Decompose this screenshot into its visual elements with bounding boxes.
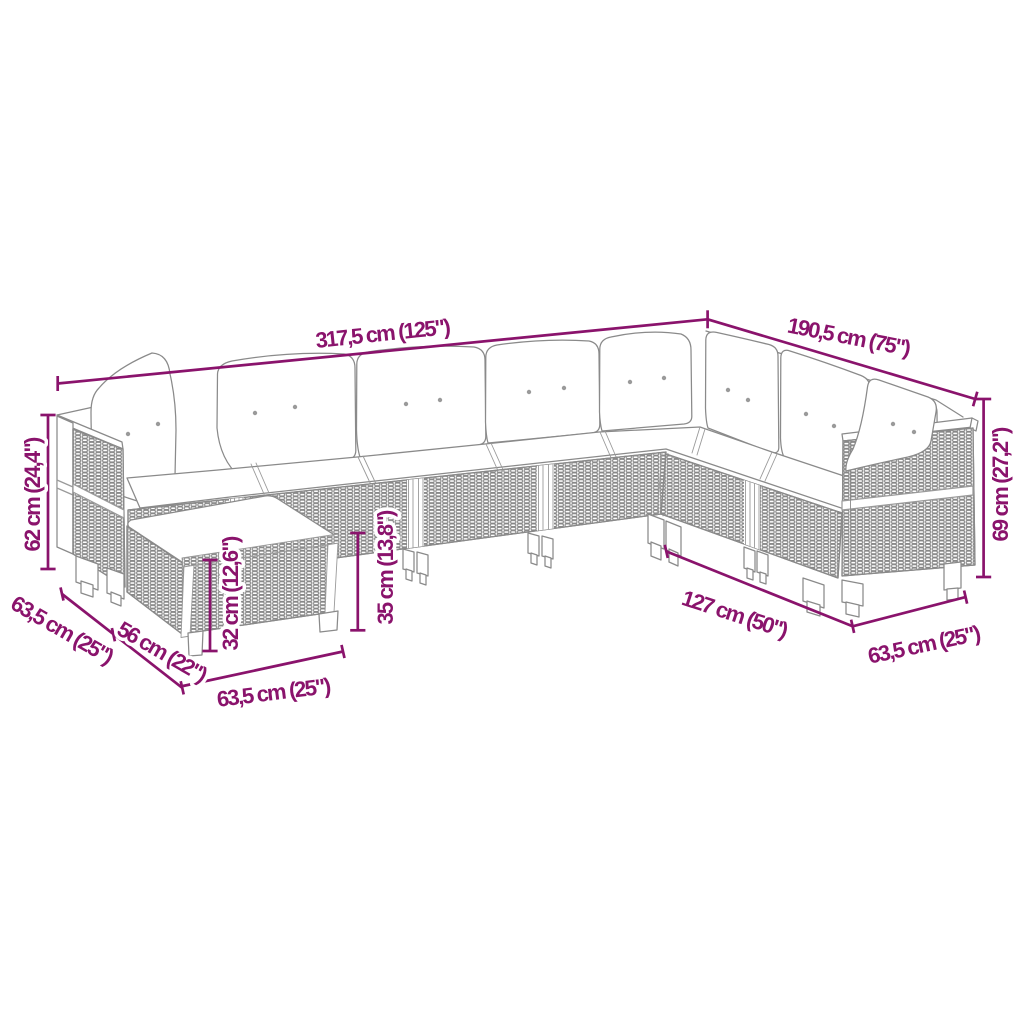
svg-text:32 cm (12,6"): 32 cm (12,6"): [218, 536, 243, 650]
svg-text:69 cm (27,2"): 69 cm (27,2"): [988, 427, 1013, 541]
svg-text:35 cm (13,8"): 35 cm (13,8"): [373, 510, 398, 624]
svg-text:62 cm (24,4"): 62 cm (24,4"): [20, 437, 45, 551]
